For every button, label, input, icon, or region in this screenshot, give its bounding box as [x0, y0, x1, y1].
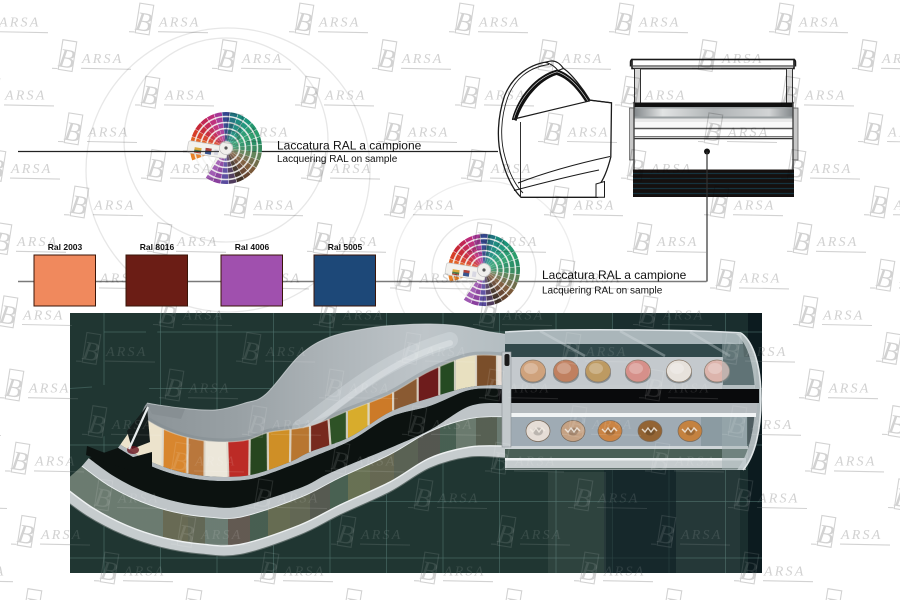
svg-text:ARSA: ARSA [170, 162, 212, 177]
svg-text:ARSA: ARSA [16, 235, 58, 250]
svg-text:ARSA: ARSA [111, 418, 153, 433]
svg-text:ARSA: ARSA [401, 52, 443, 67]
svg-text:ARSA: ARSA [644, 89, 686, 104]
svg-text:ARSA: ARSA [650, 162, 692, 177]
svg-text:ARSA: ARSA [822, 308, 864, 323]
svg-text:ARSA: ARSA [158, 16, 200, 31]
svg-text:ARSA: ARSA [561, 52, 603, 67]
svg-text:ARSA: ARSA [0, 565, 5, 580]
svg-text:ARSA: ARSA [105, 345, 147, 360]
svg-text:ARSA: ARSA [431, 418, 473, 433]
svg-text:ARSA: ARSA [804, 89, 846, 104]
svg-text:ARSA: ARSA [336, 235, 378, 250]
svg-text:ARSA: ARSA [4, 89, 46, 104]
svg-text:ARSA: ARSA [828, 382, 870, 397]
svg-text:ARSA: ARSA [763, 565, 805, 580]
svg-text:ARSA: ARSA [727, 125, 769, 140]
svg-text:ARSA: ARSA [28, 382, 70, 397]
svg-text:ARSA: ARSA [656, 235, 698, 250]
svg-text:ARSA: ARSA [0, 16, 40, 31]
svg-text:ARSA: ARSA [164, 89, 206, 104]
svg-text:Ral 4006: Ral 4006 [235, 242, 270, 252]
svg-text:ARSA: ARSA [484, 89, 526, 104]
svg-text:ARSA: ARSA [354, 455, 396, 470]
svg-text:ARSA: ARSA [200, 528, 242, 543]
svg-text:ARSA: ARSA [425, 345, 467, 360]
svg-text:ARSA: ARSA [638, 16, 680, 31]
svg-text:ARSA: ARSA [591, 418, 633, 433]
svg-text:ARSA: ARSA [739, 272, 781, 287]
svg-text:ARSA: ARSA [668, 382, 710, 397]
svg-text:ARSA: ARSA [490, 162, 532, 177]
svg-text:ARSA: ARSA [881, 52, 900, 67]
svg-text:ARSA: ARSA [194, 455, 236, 470]
svg-text:ARSA: ARSA [247, 125, 289, 140]
svg-text:ARSA: ARSA [176, 235, 218, 250]
svg-text:ARSA: ARSA [508, 382, 550, 397]
svg-text:ARSA: ARSA [241, 52, 283, 67]
svg-text:ARSA: ARSA [265, 345, 307, 360]
svg-text:ARSA: ARSA [277, 491, 319, 506]
svg-text:ARSA: ARSA [318, 16, 360, 31]
svg-text:ARSA: ARSA [253, 199, 295, 214]
svg-text:ARSA: ARSA [579, 272, 621, 287]
svg-text:ARSA: ARSA [407, 125, 449, 140]
svg-text:ARSA: ARSA [810, 162, 852, 177]
svg-text:Laccatura RAL a campione: Laccatura RAL a campione [277, 139, 422, 153]
svg-text:ARSA: ARSA [437, 491, 479, 506]
svg-text:ARSA: ARSA [81, 52, 123, 67]
svg-text:ARSA: ARSA [324, 89, 366, 104]
svg-text:ARSA: ARSA [816, 235, 858, 250]
svg-text:ARSA: ARSA [798, 16, 840, 31]
svg-text:ARSA: ARSA [674, 455, 716, 470]
svg-text:ARSA: ARSA [93, 199, 135, 214]
svg-text:ARSA: ARSA [478, 16, 520, 31]
svg-text:ARSA: ARSA [733, 199, 775, 214]
svg-text:ARSA: ARSA [680, 528, 722, 543]
svg-text:ARSA: ARSA [721, 52, 763, 67]
svg-text:ARSA: ARSA [514, 455, 556, 470]
svg-text:ARSA: ARSA [188, 382, 230, 397]
svg-text:ARSA: ARSA [496, 235, 538, 250]
svg-text:ARSA: ARSA [567, 125, 609, 140]
svg-text:ARSA: ARSA [271, 418, 313, 433]
svg-text:ARSA: ARSA [330, 162, 372, 177]
svg-text:ARSA: ARSA [10, 162, 52, 177]
svg-text:ARSA: ARSA [419, 272, 461, 287]
svg-text:ARSA: ARSA [22, 308, 64, 323]
svg-text:ARSA: ARSA [573, 199, 615, 214]
svg-text:ARSA: ARSA [887, 125, 900, 140]
svg-text:ARSA: ARSA [360, 528, 402, 543]
svg-text:ARSA: ARSA [757, 491, 799, 506]
svg-text:ARSA: ARSA [597, 491, 639, 506]
svg-text:ARSA: ARSA [834, 455, 876, 470]
svg-text:ARSA: ARSA [117, 491, 159, 506]
svg-text:ARSA: ARSA [893, 199, 900, 214]
svg-text:ARSA: ARSA [840, 528, 882, 543]
svg-text:ARSA: ARSA [348, 382, 390, 397]
svg-text:ARSA: ARSA [413, 199, 455, 214]
svg-text:ARSA: ARSA [87, 125, 129, 140]
svg-text:ARSA: ARSA [585, 345, 627, 360]
svg-text:B: B [880, 335, 900, 367]
svg-text:ARSA: ARSA [520, 528, 562, 543]
